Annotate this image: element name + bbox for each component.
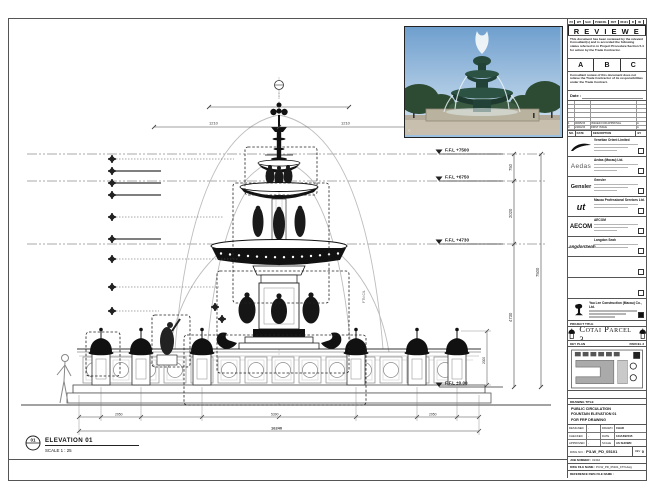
svg-text:4730: 4730 (508, 312, 513, 322)
svg-text:F.F.L +4730: F.F.L +4730 (445, 238, 469, 243)
contractor-logo-icon (568, 299, 589, 320)
stamp-status-options: A B C (568, 59, 646, 72)
status-option-b[interactable]: B (594, 59, 620, 71)
elevation-callout: 01 ELEVATION 01 SCALE 1 : 25 (26, 436, 139, 453)
svg-text:7500: 7500 (535, 267, 540, 277)
gensler-logo: Gensler (568, 177, 594, 196)
lamp-icon (639, 328, 646, 340)
revision-table: 106/05/15ISSUED FOR APPROVALA 024/04/15F… (568, 101, 646, 131)
svg-text:16240: 16240 (271, 426, 283, 431)
mps-logo: ut (568, 197, 594, 216)
drawing-info-table: DESIGNED-DRAWNCHAD CHECKED-DATE12/JUN/20… (568, 425, 646, 447)
venetian-orient-logo-icon (568, 137, 594, 156)
file-name-row: DWG FILE NAME : P3-W_PD_05101_FTN.dwg (568, 464, 646, 471)
consultant-block-langdon-seah: LangdonSeah Langdon Seah (568, 237, 646, 257)
svg-text:F.F.L ±0.00: F.F.L ±0.00 (445, 381, 468, 386)
svg-text:01: 01 (30, 438, 36, 443)
contractor-checkbox[interactable] (638, 312, 644, 318)
centerline-note: FTN C/L (362, 290, 366, 303)
consultant-checkbox[interactable] (638, 208, 644, 214)
svg-text:©: © (408, 129, 411, 133)
reference-row: REFERENCE DWG FILE NAME : (568, 471, 646, 477)
drawing-title-text: PUBLIC CIRCULATION FOUNTAIN ELEVATION 01… (568, 405, 646, 425)
revision-row: 024/04/15FIRST ISSUEA (568, 126, 646, 130)
stamp-statement: This document has been reviewed by the r… (568, 36, 646, 59)
svg-text:F.F.L +7500: F.F.L +7500 (445, 148, 469, 153)
consultant-block-aecom: AECOM AECOM (568, 217, 646, 237)
level-markers: F.F.L +7500 F.F.L +6750 F.F.L +4730 F.F.… (436, 148, 504, 388)
stamp-disclaimer: Consultant review of this document does … (568, 72, 646, 91)
svg-text:2950: 2950 (429, 413, 437, 417)
svg-text:5390: 5390 (271, 413, 279, 417)
svg-text:2950: 2950 (115, 413, 123, 417)
rev-value: 0 (642, 449, 644, 454)
langdon-seah-logo: LangdonSeah (568, 237, 594, 256)
svg-text:ELEVATION 01: ELEVATION 01 (45, 437, 93, 444)
aedas-logo: Aedas (568, 157, 594, 176)
consultant-block-aedas: Aedas Aedas (Macau) Ltd. (568, 157, 646, 177)
consultant-checkbox[interactable] (638, 168, 644, 174)
title-block-column: P3W7SACPUBCRLFNT05101R00 R E V I E W E D… (567, 19, 646, 478)
job-number-row: JOB NUMBER : 31310 (568, 457, 646, 464)
svg-text:F.F.L +6750: F.F.L +6750 (445, 175, 469, 180)
consultant-checkbox[interactable] (638, 188, 644, 194)
empty-consultant-box (568, 257, 646, 278)
lamp-icon (568, 328, 575, 340)
contractor-block: Yau Lee Construction (Macau) Co., Ltd. (568, 299, 646, 321)
status-option-a[interactable]: A (568, 59, 594, 71)
svg-text:1210: 1210 (209, 121, 219, 126)
svg-text:SCALE 1 : 25: SCALE 1 : 25 (45, 448, 72, 453)
reference-photo: © (404, 26, 563, 138)
statue-figure (157, 319, 180, 365)
aecom-logo: AECOM (568, 217, 594, 236)
date-label: Date : (570, 93, 581, 98)
consultant-block-venetian: Venetian Orient Limited (568, 137, 646, 157)
empty-consultant-box (568, 278, 646, 299)
project-name-box: Cotai Parcel 3 (568, 327, 646, 341)
key-plan-drawing (568, 347, 646, 391)
fountain-structure (211, 81, 347, 350)
dim-right: 750 2020 4730 7500 (508, 152, 543, 389)
consultant-checkbox[interactable] (638, 248, 644, 254)
consultant-checkbox[interactable] (638, 228, 644, 234)
date-line[interactable] (582, 98, 643, 99)
reviewed-stamp-title: R E V I E W E D (568, 25, 646, 36)
svg-text:2000: 2000 (482, 357, 486, 364)
svg-text:750: 750 (508, 163, 513, 171)
sheet: 1210 1210 F.F.L +7500 F.F.L +6750 (8, 18, 647, 481)
notes-spacer (568, 391, 646, 399)
consultant-block-gensler: Gensler Gensler (568, 177, 646, 197)
project-name: Cotai Parcel 3 (579, 327, 634, 341)
consultant-block-mps: ut Macau Professional Services Ltd. (568, 197, 646, 217)
dwg-number-row: DWG NO. : P3-W_PD_05101 REV 0 (568, 447, 646, 457)
stamp-date-row: Date : (568, 91, 646, 101)
dwg-number: P3-W_PD_05101 (586, 449, 617, 454)
svg-text:2020: 2020 (508, 208, 513, 218)
svg-text:1210: 1210 (341, 121, 351, 126)
rev-box: REV 0 (632, 447, 646, 456)
keynote-markers (108, 155, 239, 323)
consultant-checkbox[interactable] (638, 148, 644, 154)
scanned-drawing-sheet: { "strip": {"segments": ["P3","W7","SAC"… (0, 0, 650, 488)
status-option-c[interactable]: C (621, 59, 646, 71)
